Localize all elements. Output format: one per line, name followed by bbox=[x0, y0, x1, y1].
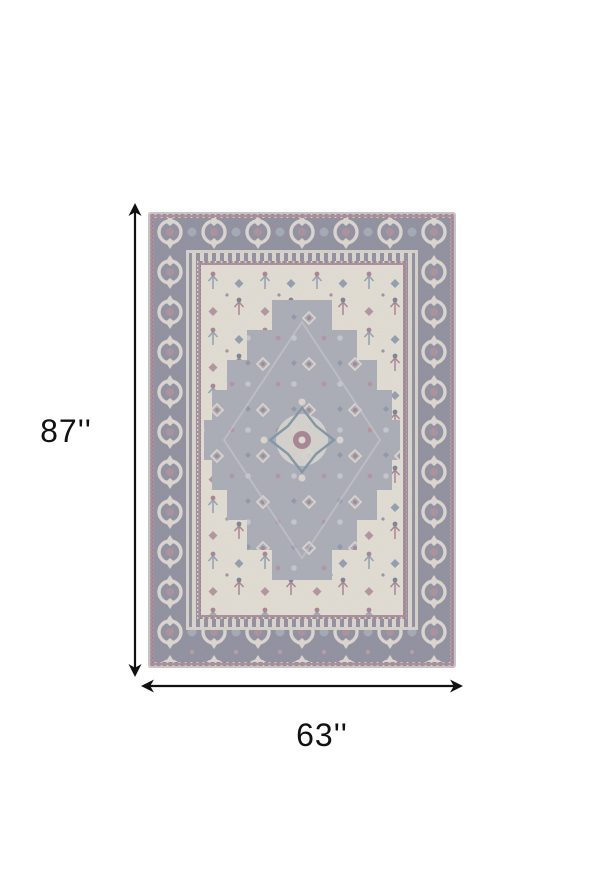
width-dimension-label: 63'' bbox=[280, 717, 364, 754]
rug-image bbox=[148, 212, 456, 668]
height-dimension-arrow bbox=[126, 202, 144, 678]
product-dimension-diagram: 87'' 63'' bbox=[0, 0, 600, 890]
height-dimension-label: 87'' bbox=[24, 413, 108, 450]
width-dimension-arrow bbox=[140, 677, 464, 695]
rug-texture-overlay bbox=[148, 212, 456, 668]
